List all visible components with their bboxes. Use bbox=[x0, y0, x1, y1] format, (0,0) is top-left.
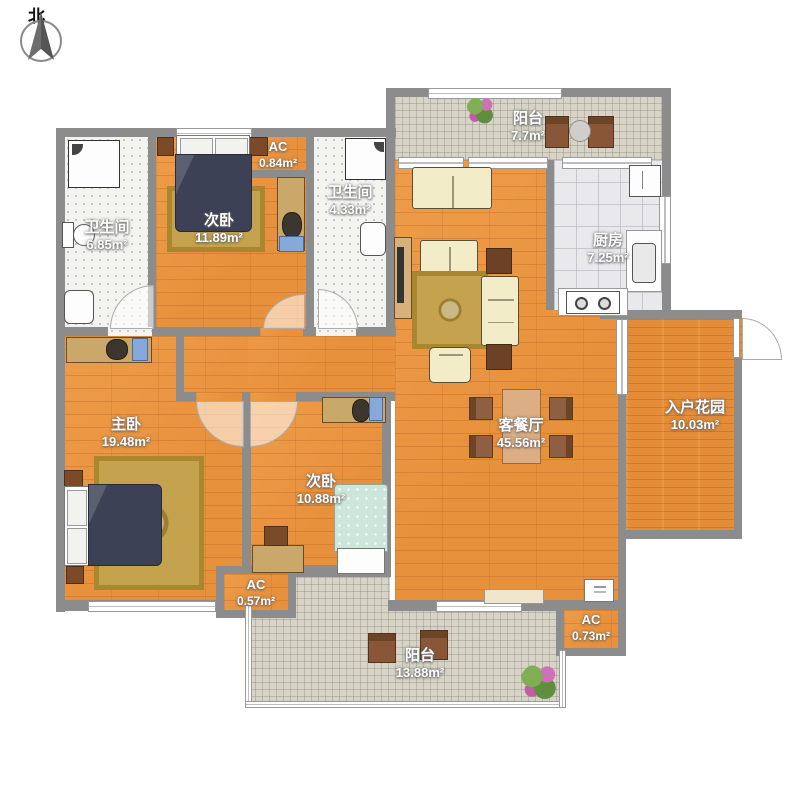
balcony-chair bbox=[545, 116, 569, 148]
door-gap-master bbox=[196, 392, 242, 401]
desk-chair bbox=[282, 212, 302, 238]
water-heater-icon bbox=[584, 579, 614, 602]
balcony-bottom-left-window bbox=[245, 605, 252, 708]
stove-icon bbox=[566, 291, 620, 314]
balcony-bottom-floor bbox=[248, 605, 562, 706]
nightstand bbox=[157, 137, 174, 156]
sofa-vertical bbox=[481, 276, 519, 346]
balcony-chair bbox=[588, 116, 614, 148]
chair bbox=[264, 526, 288, 546]
pillow bbox=[67, 528, 87, 564]
nightstand bbox=[66, 566, 84, 584]
dining-chair bbox=[549, 435, 573, 458]
device-icon bbox=[369, 397, 383, 421]
side-table bbox=[486, 344, 512, 370]
master-bottom-window bbox=[88, 601, 216, 612]
balcony-bottom-bottom-window bbox=[245, 701, 566, 708]
bench bbox=[484, 589, 544, 604]
kitchen-sink-icon bbox=[632, 243, 656, 283]
bed-blanket bbox=[175, 154, 252, 232]
plant-icon bbox=[520, 663, 560, 701]
balcony-top-floor bbox=[395, 96, 662, 160]
wall bbox=[618, 393, 626, 611]
floor-plan: 卫生间6.85m² 次卧11.89m² AC0.84m² 卫生间4.33m² 阳… bbox=[0, 0, 800, 800]
armchair bbox=[429, 347, 471, 383]
desk-chair bbox=[106, 339, 128, 360]
side-table bbox=[486, 248, 512, 274]
dining-table bbox=[502, 389, 541, 464]
ac-master-floor bbox=[224, 574, 288, 610]
compass: 北 bbox=[8, 2, 72, 66]
bed-foot bbox=[337, 548, 385, 574]
tv-icon bbox=[397, 247, 404, 303]
wall bbox=[546, 160, 554, 310]
dining-chair bbox=[469, 397, 493, 420]
balcony-bottom-right-window bbox=[559, 650, 566, 708]
compass-arrow-icon bbox=[8, 8, 72, 66]
living-rug bbox=[412, 271, 488, 349]
sofa bbox=[420, 240, 478, 273]
wall bbox=[306, 136, 314, 327]
balcony-top-window bbox=[428, 88, 562, 99]
sink-icon bbox=[360, 222, 386, 256]
balcony-chair bbox=[368, 633, 396, 663]
entry-door-leaf bbox=[733, 318, 740, 358]
door-gap-bedroom-bottom bbox=[250, 392, 296, 401]
balcony-table bbox=[569, 120, 591, 142]
plant-icon bbox=[466, 96, 496, 125]
balcony-bottom-notch-floor bbox=[290, 577, 390, 609]
monitor-icon bbox=[132, 338, 148, 361]
living-garden-window bbox=[616, 319, 628, 395]
sink-icon bbox=[64, 290, 94, 324]
bed-blanket bbox=[88, 484, 162, 566]
desk-chair bbox=[352, 399, 370, 422]
dining-chair bbox=[549, 397, 573, 420]
ac-living-floor bbox=[564, 610, 618, 648]
dining-chair bbox=[469, 435, 493, 458]
door-arc-entry bbox=[742, 318, 782, 360]
printer-icon bbox=[279, 236, 304, 252]
sofa bbox=[412, 167, 492, 209]
pillow bbox=[67, 490, 87, 526]
wall bbox=[618, 530, 742, 539]
toilet-bowl-icon bbox=[73, 224, 95, 246]
entry-garden-floor bbox=[626, 319, 734, 530]
fridge-handle bbox=[642, 171, 651, 189]
balcony-chair bbox=[420, 630, 448, 660]
desk bbox=[252, 545, 304, 573]
single-bed bbox=[334, 484, 388, 552]
